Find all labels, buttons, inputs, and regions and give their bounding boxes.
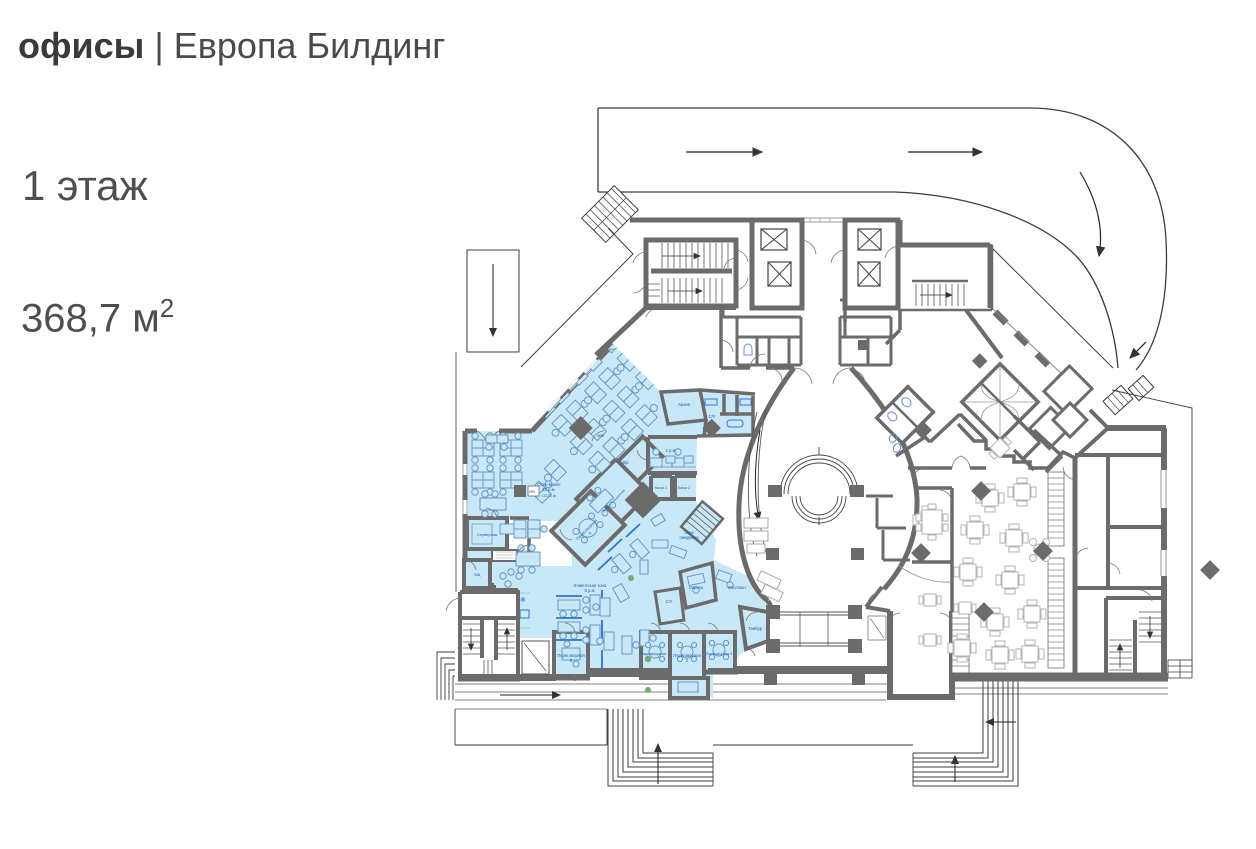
svg-text:8 р.м.: 8 р.м. — [584, 588, 595, 593]
svg-text:Радиовещание 1: Радиовещание 1 — [641, 652, 669, 656]
svg-text:Касса 1: Касса 1 — [655, 486, 667, 490]
svg-text:23 р.м.: 23 р.м. — [542, 487, 555, 492]
svg-text:ожидания: ожидания — [679, 535, 698, 540]
svg-text:ЭЩ: ЭЩ — [474, 572, 481, 577]
svg-text:Тамбур: Тамбур — [748, 626, 763, 631]
svg-text:VRV: VRV — [529, 490, 536, 494]
svg-text:VRV: VRV — [597, 434, 605, 438]
svg-text:Касса 2: Касса 2 — [678, 486, 690, 490]
svg-text:2 р.м.: 2 р.м. — [665, 448, 676, 453]
svg-text:❄: ❄ — [520, 596, 526, 604]
svg-text:С/У: С/У — [709, 414, 716, 419]
svg-text:122,51 м²: 122,51 м² — [542, 494, 558, 498]
svg-text:Ресепшн: Ресепшн — [728, 585, 746, 590]
svg-text:Серверная: Серверная — [477, 532, 497, 537]
svg-text:Переговорная 3: Переговорная 3 — [706, 652, 733, 656]
svg-text:Архив: Архив — [678, 402, 691, 407]
svg-text:Охрана: Охрана — [689, 585, 704, 590]
svg-text:Сейф: Сейф — [617, 460, 629, 465]
svg-text:С/У: С/У — [666, 599, 673, 604]
